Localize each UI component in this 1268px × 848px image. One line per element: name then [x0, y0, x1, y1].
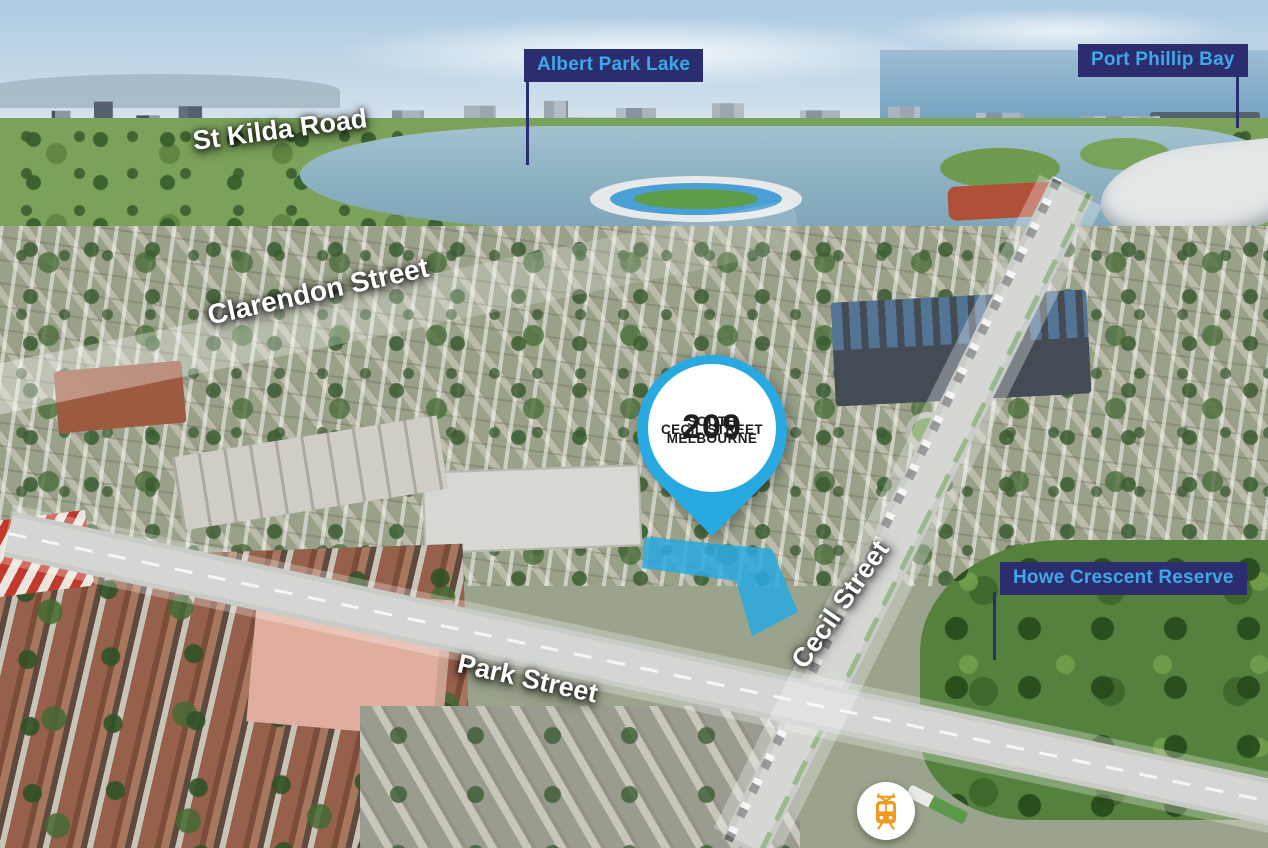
- leader-line: [1236, 74, 1239, 128]
- leader-line: [993, 592, 996, 660]
- port-phillip-bay-label: Port Phillip Bay: [1078, 44, 1248, 77]
- aerial-map: Albert Park Lake Port Phillip Bay Howe C…: [0, 0, 1268, 848]
- tram-icon: [866, 791, 906, 831]
- pin-suburb: SOUTH MELBOURNE: [667, 414, 758, 448]
- leader-line: [526, 81, 529, 165]
- albert-park-lake-label: Albert Park Lake: [524, 49, 703, 82]
- tram-stop-badge: [857, 782, 915, 840]
- distant-hills: [0, 74, 340, 108]
- pin-suburb-line1: SOUTH: [687, 414, 736, 429]
- white-warehouse-roof: [422, 464, 643, 554]
- stadium-field: [634, 189, 758, 209]
- property-pin: 209 CECIL STREET SOUTH MELBOURNE: [648, 364, 776, 492]
- howe-crescent-reserve-label: Howe Crescent Reserve: [1000, 562, 1247, 595]
- pin-suburb-line2: MELBOURNE: [667, 431, 758, 446]
